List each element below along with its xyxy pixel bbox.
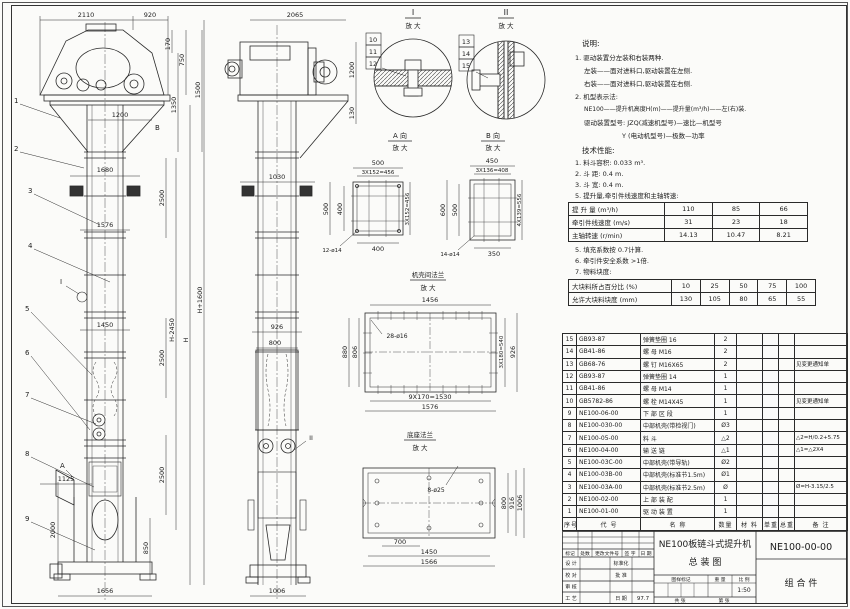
spec-table-lump-size: 大块料所占百分比 (%)10255075100允许大块料块度 (mm)13010… (568, 279, 816, 306)
cell (763, 346, 779, 358)
cell (779, 370, 795, 382)
table-row: 10GB5782-86螺 栓 M14X451见变更通知单 (563, 395, 848, 407)
balloon: 1 (14, 97, 18, 105)
bom-header-row: 序号 代 号 名 称 数量 材 料 单重 总重 备 注 (563, 518, 848, 530)
cell: 允许大块料块度 (mm) (569, 293, 672, 306)
cell (795, 420, 848, 432)
cell: 14.13 (665, 229, 713, 242)
note-line: 右装——面对进料口,驱动装置在右侧. (584, 81, 692, 88)
cell: NE100-02-00 (577, 493, 641, 505)
cell: 23 (712, 216, 760, 229)
table-row: 2NE100-02-00上 部 装 配1 (563, 493, 848, 505)
bom-header-cell: 材 料 (737, 518, 763, 530)
cell: 18 (760, 216, 808, 229)
cell: 螺 钉 M16X65 (641, 358, 715, 370)
cell: 14 (563, 346, 577, 358)
cell (795, 493, 848, 505)
table-row: 4NE100-03B-00中部机壳(标准节1.5m)Ø1 (563, 469, 848, 481)
spec-table-speed: 提 升 量 (m³/h)1108566牵引件线速度 (m/s)312318主轴转… (568, 202, 808, 242)
balloon: 2 (14, 145, 18, 153)
cell: 13 (563, 358, 577, 370)
dim-label: 2500 (158, 467, 166, 484)
tb-date-value: 97.7 (637, 596, 650, 602)
dim-label: 1450 (97, 321, 114, 329)
cell: 10.47 (712, 229, 760, 242)
cell (779, 506, 795, 518)
dim-label: 926 (509, 346, 517, 358)
bom-header-cell: 单重 (763, 518, 779, 530)
notes-heading: 说明: (582, 40, 600, 48)
cell (737, 370, 763, 382)
cell (737, 444, 763, 456)
cell (737, 506, 763, 518)
dim-label: 750 (178, 54, 186, 66)
cell: 中部机壳(标准节2.5m) (641, 481, 715, 493)
tb-label: 更改文件号 (595, 550, 619, 557)
note-line: 1. 驱动装置分左装和右装两种. (575, 55, 663, 62)
enlarge-label: 放 大 (412, 443, 428, 452)
balloon: 10 (369, 36, 377, 44)
cell (737, 456, 763, 468)
view-mark-a: A (60, 462, 65, 470)
table-row: 8NE100-030-00中部机壳(带检视门)Ø3 (563, 420, 848, 432)
note-line: 左装——面对进料口,驱动装置在左侧. (584, 68, 692, 75)
cell: NE100-06-00 (577, 407, 641, 419)
cell (737, 395, 763, 407)
drawing-title-line2: 总 装 图 (689, 556, 722, 568)
dim-label: 500 (372, 159, 384, 167)
cell (737, 346, 763, 358)
tech-line: 6. 牵引件安全系数 >1倍. (575, 258, 649, 265)
dim-label: 926 (271, 323, 283, 331)
dim-label: 1350 (170, 97, 178, 114)
dim-label: 1006 (516, 495, 524, 512)
cell: 中部机壳(带导轨) (641, 456, 715, 468)
cell: GB5782-86 (577, 395, 641, 407)
enlarge-label: 放 大 (392, 143, 408, 152)
cell: 66 (760, 203, 808, 216)
cell (763, 420, 779, 432)
cell (779, 407, 795, 419)
bom-header-cell: 总重 (779, 518, 795, 530)
bom-table: 15GB93-87弹簧垫圈 16214GB41-86螺 母 M16213GB68… (562, 333, 848, 531)
cell (737, 432, 763, 444)
balloon: 12 (369, 60, 377, 68)
cell: GB93-87 (577, 370, 641, 382)
cell: 见变更通知单 (795, 358, 848, 370)
dim-label: 920 (144, 11, 156, 19)
cell: 上 部 装 配 (641, 493, 715, 505)
dim-label: 2000 (49, 522, 57, 539)
dim-label: 400 (372, 245, 384, 253)
cell: Ø2 (715, 456, 737, 468)
dim-label: 3X180=540 (499, 335, 505, 368)
cell: 130 (672, 293, 701, 306)
cell: 1 (715, 407, 737, 419)
cell: 见变更通知单 (795, 395, 848, 407)
tb-approve-label: 批 准 (615, 572, 627, 579)
cell: 7 (563, 432, 577, 444)
cell (779, 395, 795, 407)
table-row: 13GB68-76螺 钉 M16X652见变更通知单 (563, 358, 848, 370)
cell (737, 358, 763, 370)
detail-ii-label: II (504, 8, 509, 17)
hole-callout: 14-ø14 (440, 252, 460, 258)
case-flange-view: 机壳间法兰 放 大 1456 28-ø16 880 806 3X180=540 … (341, 270, 517, 411)
cell: 大块料所占百分比 (%) (569, 280, 672, 293)
cell (795, 456, 848, 468)
cell: 8 (563, 420, 577, 432)
dim-label: 170 (164, 38, 172, 50)
cell: 2 (715, 358, 737, 370)
balloon: 13 (462, 38, 470, 46)
dim-label: 1450 (421, 548, 438, 556)
cell: 中部机壳(标准节1.5m) (641, 469, 715, 481)
balloon: 4 (28, 242, 33, 250)
cell: 驱 动 装 置 (641, 506, 715, 518)
cell: 弹簧垫圈 16 (641, 334, 715, 346)
cell (795, 383, 848, 395)
side-view-dims: 2065 1200 130 1030 926 800 1006 II (240, 11, 356, 596)
cell (763, 432, 779, 444)
dim-label: 1006 (269, 587, 286, 595)
cell (779, 420, 795, 432)
cell (779, 493, 795, 505)
cell: 65 (758, 293, 787, 306)
cell (779, 444, 795, 456)
note-line: Y (电动机型号)—极数—功率 (622, 133, 705, 140)
bom-header-cell: 序号 (563, 518, 577, 530)
dim-label: 1656 (97, 587, 114, 595)
tb-date-label: 日 期 (615, 596, 627, 602)
dim-label: 2500 (158, 350, 166, 367)
cell (779, 481, 795, 493)
dim-label: 1576 (422, 403, 439, 411)
bom-header-cell: 备 注 (795, 518, 848, 530)
tech-line: 2. 斗 距: 0.4 m. (575, 171, 623, 178)
dim-label: 700 (394, 538, 406, 546)
cell: 10 (672, 280, 701, 293)
cell (763, 383, 779, 395)
dim-label: 3X152=456 (362, 170, 395, 176)
table-row: 6NE100-04-00输 送 链△1△1=△2X4 (563, 444, 848, 456)
cell: NE100-01-00 (577, 506, 641, 518)
cell: Ø1 (715, 469, 737, 481)
dim-label: 9X170=1530 (409, 393, 452, 401)
cell (779, 383, 795, 395)
cell: 1 (715, 370, 737, 382)
dim-label: H (182, 337, 190, 342)
cell: 110 (665, 203, 713, 216)
drawing-canvas: 1 2 3 4 5 6 7 8 9 I B A (0, 0, 563, 609)
cell: NE100-030-00 (577, 420, 641, 432)
dim-label: 806 (351, 346, 359, 358)
cell: 11 (563, 383, 577, 395)
cell (763, 506, 779, 518)
cell: △1 (715, 444, 737, 456)
enlarge-label: 放 大 (420, 283, 436, 292)
cell (779, 334, 795, 346)
front-view (40, 22, 170, 600)
table-row: 11GB41-86螺 母 M141 (563, 383, 848, 395)
dim-label: 500 (451, 204, 459, 216)
case-flange-label: 机壳间法兰 (412, 270, 445, 279)
view-a: A 向 放 大 500 3X152=456 500 400 3X152=456 … (322, 131, 412, 254)
cell: Ø3 (715, 420, 737, 432)
note-line: 2. 机型表示法: (575, 94, 618, 101)
cell: 4 (563, 469, 577, 481)
cell: 5 (563, 456, 577, 468)
cell: 下 部 区 段 (641, 407, 715, 419)
balloon: 11 (369, 48, 377, 56)
cell: 55 (787, 293, 816, 306)
cell: 1 (715, 383, 737, 395)
tb-mark-label: 图样标记 (671, 576, 690, 583)
cell: GB41-86 (577, 383, 641, 395)
cell: △1=△2X4 (795, 444, 848, 456)
cell: 2 (715, 346, 737, 358)
tb-label: 处数 (580, 550, 590, 557)
cell: 8.21 (760, 229, 808, 242)
table-row: 9NE100-06-00下 部 区 段1 (563, 407, 848, 419)
balloon: 9 (25, 515, 29, 523)
table-row: 14GB41-86螺 母 M162 (563, 346, 848, 358)
tb-label: 标记 (565, 550, 575, 557)
dim-label: 4X139=556 (517, 193, 523, 226)
bom-header-cell: 数量 (715, 518, 737, 530)
cell: 31 (665, 216, 713, 229)
dim-label: 1500 (194, 82, 202, 99)
dim-label: 1200 (348, 62, 356, 79)
cell: 6 (563, 444, 577, 456)
cell (763, 469, 779, 481)
cell: 105 (700, 293, 729, 306)
balloon: 7 (25, 391, 29, 399)
cell: 1 (715, 506, 737, 518)
tech-line: 5. 提升量,牵引件线速度和主轴转速: (575, 193, 679, 200)
dim-label: 1125 (58, 475, 75, 483)
balloon: 5 (25, 305, 29, 313)
cell (763, 493, 779, 505)
cell (737, 407, 763, 419)
tech-line: 7. 物料块度: (575, 269, 611, 276)
cell: NE100-03A-00 (577, 481, 641, 493)
balloon: 6 (25, 349, 30, 357)
cell: 1 (715, 493, 737, 505)
drawing-number: NE100-00-00 (770, 542, 832, 553)
side-view (225, 25, 348, 600)
dim-label: H-2450 (168, 318, 176, 342)
part-type: 组 合 件 (785, 577, 818, 589)
table-row: 1NE100-01-00驱 动 装 置1 (563, 506, 848, 518)
cell (779, 358, 795, 370)
dim-label: 2065 (287, 11, 304, 19)
cell: 1 (563, 506, 577, 518)
cell: 50 (729, 280, 758, 293)
detail-i-label: I (412, 8, 414, 17)
cell: 75 (758, 280, 787, 293)
dim-label: 350 (488, 250, 500, 258)
cell: GB41-86 (577, 346, 641, 358)
dim-label: 600 (439, 204, 447, 216)
cell: NE100-05-00 (577, 432, 641, 444)
cell (763, 407, 779, 419)
cell: 料 斗 (641, 432, 715, 444)
cell (763, 370, 779, 382)
enlarge-label: 放 大 (485, 143, 501, 152)
hole-callout: 8-ø25 (427, 487, 444, 494)
bom-header-cell: 名 称 (641, 518, 715, 530)
bom-header-cell: 代 号 (577, 518, 641, 530)
tech-line: 3. 斗 宽: 0.4 m. (575, 182, 623, 189)
cell: 12 (563, 370, 577, 382)
drawing-sheet: 1 2 3 4 5 6 7 8 9 I B A (0, 0, 850, 609)
tb-scale-label: 比 例 (738, 576, 749, 583)
section-mark-i: I (60, 278, 62, 286)
tb-design-label: 设 计 (565, 560, 577, 567)
tb-weight-label: 重 量 (714, 576, 725, 583)
cell: 螺 母 M16 (641, 346, 715, 358)
table-row: 提 升 量 (m³/h)1108566 (569, 203, 808, 216)
cell: 弹簧垫圈 14 (641, 370, 715, 382)
table-row: 3NE100-03A-00中部机壳(标准节2.5m)ØØ=H-3.15/2.5 (563, 481, 848, 493)
enlarge-label: 放 大 (498, 21, 514, 30)
table-row: 主轴转速 (r/min)14.1310.478.21 (569, 229, 808, 242)
table-row: 7NE100-05-00料 斗△2△2=H/0.2+5.75 (563, 432, 848, 444)
detail-view-i: I 放 大 10 11 12 (366, 8, 452, 117)
hole-callout: 28-ø16 (386, 333, 407, 340)
cell: 中部机壳(带检视门) (641, 420, 715, 432)
dim-label: 880 (341, 346, 349, 358)
cell (795, 506, 848, 518)
base-flange-label: 底座法兰 (407, 430, 434, 439)
cell: 提 升 量 (m³/h) (569, 203, 665, 216)
cell (795, 370, 848, 382)
tech-line: 5. 填充系数按 0.7计算. (575, 247, 643, 254)
dim-label: 2110 (78, 11, 95, 19)
cell: 2 (563, 493, 577, 505)
tech-heading: 技术性能: (582, 147, 615, 155)
view-mark-b: B (155, 124, 160, 132)
table-row: 12GB93-87弹簧垫圈 141 (563, 370, 848, 382)
dim-label: 130 (348, 107, 356, 119)
dim-label: 1030 (269, 173, 286, 181)
dim-label: 916 (508, 497, 516, 509)
tb-standard-label: 标准化 (613, 560, 628, 567)
cell: 输 送 链 (641, 444, 715, 456)
title-block: 标记 处数 更改文件号 签 字 日 期 设 计 校 对 审 核 工 艺 标准化 … (562, 531, 847, 604)
table-row: 15GB93-87弹簧垫圈 162 (563, 334, 848, 346)
cell: △2 (715, 432, 737, 444)
enlarge-label: 放 大 (405, 21, 421, 30)
cell: 85 (712, 203, 760, 216)
cell: NE100-03C-00 (577, 456, 641, 468)
cell: 螺 栓 M14X45 (641, 395, 715, 407)
dim-label: 850 (142, 542, 150, 554)
cell (737, 420, 763, 432)
cell: GB93-87 (577, 334, 641, 346)
cell: 2 (715, 334, 737, 346)
cell (779, 469, 795, 481)
tb-check-label: 校 对 (565, 572, 577, 579)
section-mark-ii: II (309, 434, 313, 442)
dim-label: 400 (336, 203, 344, 215)
tb-sheets-label: 共 张 (674, 597, 685, 604)
cell: Ø=H-3.15/2.5 (795, 481, 848, 493)
dim-label: H+1600 (196, 287, 204, 314)
dim-label: 1680 (97, 166, 114, 174)
cell (763, 358, 779, 370)
cell: 100 (787, 280, 816, 293)
cell (737, 334, 763, 346)
cell: 1 (715, 395, 737, 407)
view-b: B 向 放 大 450 3X136=408 600 500 4X139=556 … (439, 131, 523, 258)
tb-label: 日 期 (640, 551, 651, 557)
view-a-label: A 向 (393, 131, 407, 140)
balloon: 8 (25, 450, 29, 458)
balloon: 3 (28, 187, 32, 195)
dim-label: 500 (322, 203, 330, 215)
note-line: 驱动装置型号: JZQ(减速机型号)—速比—机型号 (584, 120, 722, 127)
cell (795, 407, 848, 419)
dim-label: 1200 (112, 111, 129, 119)
cell (795, 469, 848, 481)
cell (737, 383, 763, 395)
right-panel: 说明: 1. 驱动装置分左装和右装两种. 左装——面对进料口,驱动装置在左侧. … (562, 0, 847, 609)
dim-label: 3X152=456 (405, 192, 411, 225)
cell (795, 334, 848, 346)
table-row: 允许大块料块度 (mm)130105806555 (569, 293, 816, 306)
table-row: 大块料所占百分比 (%)10255075100 (569, 280, 816, 293)
cell: 80 (729, 293, 758, 306)
tb-review-label: 审 核 (565, 584, 577, 591)
balloon: 15 (462, 62, 470, 70)
cell: 螺 母 M14 (641, 383, 715, 395)
tb-page-label: 第 张 (718, 597, 729, 604)
drawing-title-line1: NE100板链斗式提升机 (659, 538, 752, 550)
cell (737, 469, 763, 481)
front-view-dims: 2110 920 1200 1680 1576 1450 1125 1656 1… (40, 11, 204, 596)
dim-label: 1576 (97, 221, 114, 229)
cell: GB68-76 (577, 358, 641, 370)
cell (737, 493, 763, 505)
cell: 主轴转速 (r/min) (569, 229, 665, 242)
dim-label: 450 (486, 157, 498, 165)
cell: Ø (715, 481, 737, 493)
cell (779, 432, 795, 444)
cell: 3 (563, 481, 577, 493)
tb-scale-value: 1:50 (737, 587, 751, 594)
cell: 25 (700, 280, 729, 293)
dim-label: 1566 (421, 558, 438, 566)
cell (779, 456, 795, 468)
cell: NE100-04-00 (577, 444, 641, 456)
detail-view-ii: II 放 大 13 14 15 (459, 8, 545, 119)
balloon: 14 (462, 50, 470, 58)
cell (763, 444, 779, 456)
dim-label: 1456 (422, 296, 439, 304)
cell (795, 346, 848, 358)
table-row: 牵引件线速度 (m/s)312318 (569, 216, 808, 229)
cell: 10 (563, 395, 577, 407)
dim-label: 800 (500, 497, 508, 509)
cell (763, 334, 779, 346)
hole-callout: 12-ø14 (322, 248, 342, 254)
cell: NE100-03B-00 (577, 469, 641, 481)
cell (763, 481, 779, 493)
tech-line: 1. 料斗容积: 0.033 m³. (575, 160, 645, 167)
cell: △2=H/0.2+5.75 (795, 432, 848, 444)
